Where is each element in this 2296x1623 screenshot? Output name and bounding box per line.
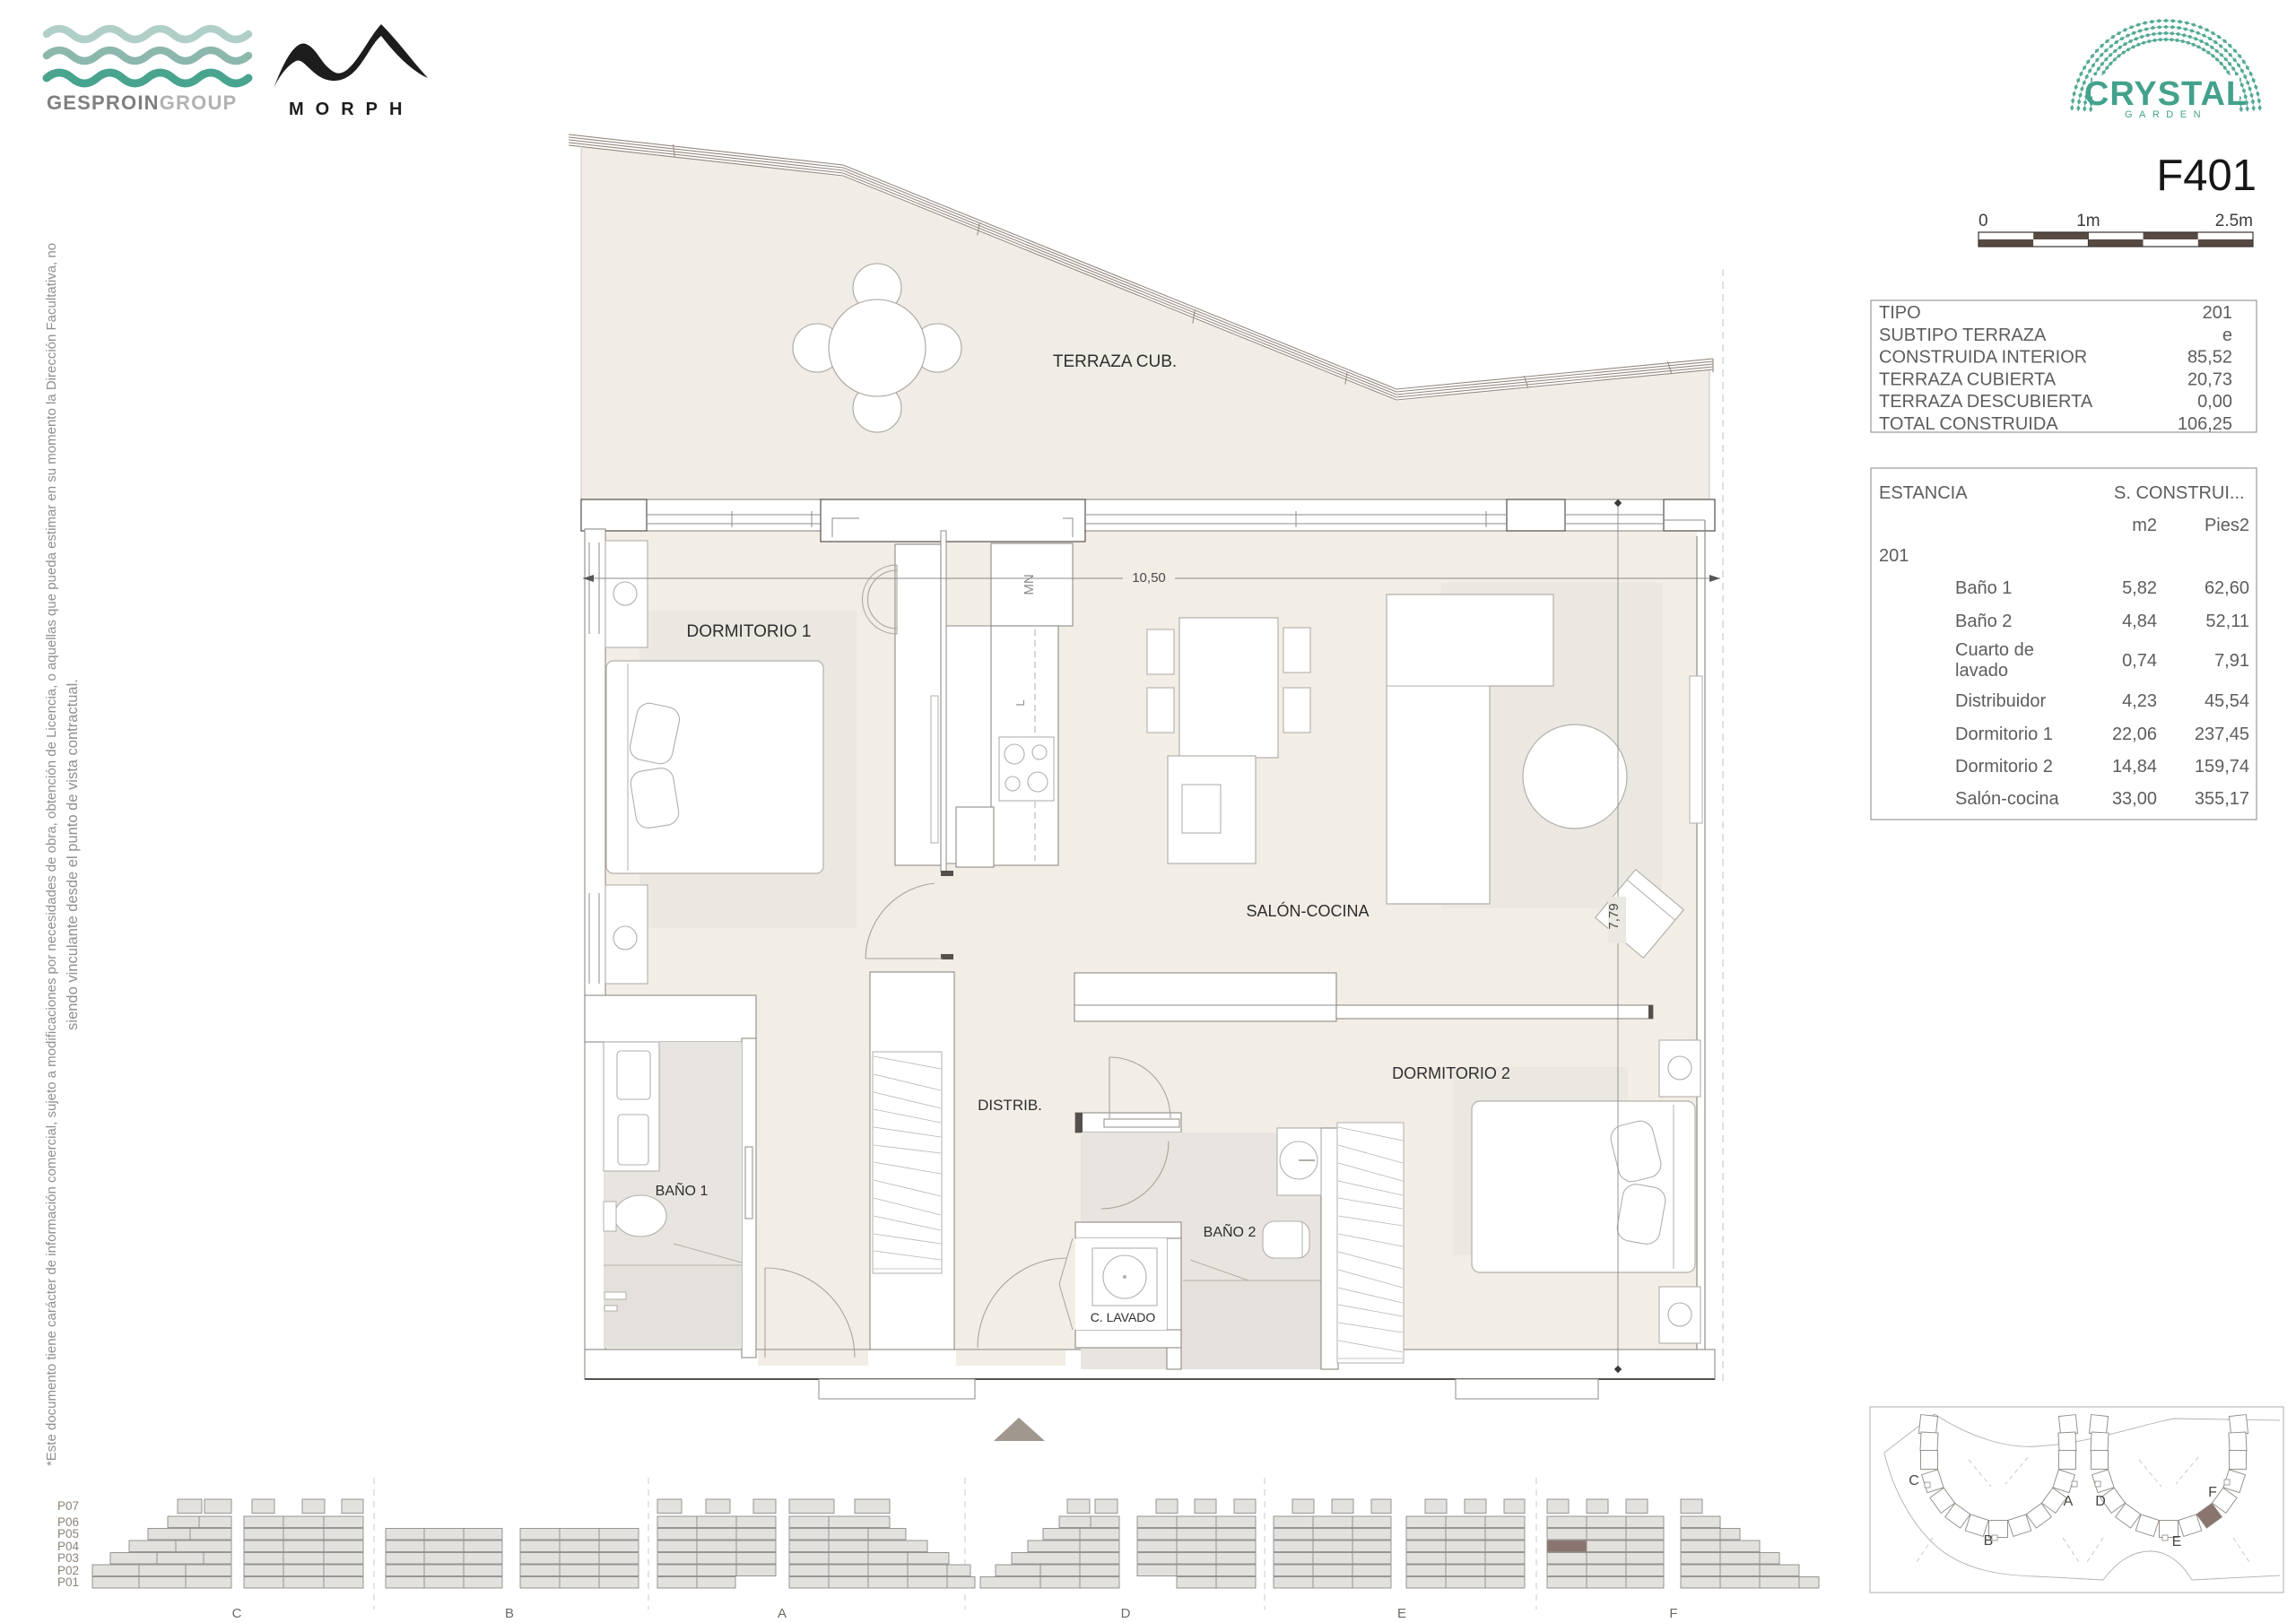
- svg-text:10,50: 10,50: [1132, 570, 1166, 586]
- svg-text:DISTRIB.: DISTRIB.: [978, 1097, 1042, 1114]
- svg-text:20,73: 20,73: [2187, 369, 2232, 389]
- svg-text:*Este documento tiene carácter: *Este documento tiene carácter de inform…: [44, 243, 59, 1466]
- svg-text:C. LAVADO: C. LAVADO: [1091, 1310, 1156, 1324]
- svg-text:GESPROINGROUP: GESPROINGROUP: [47, 91, 237, 114]
- svg-text:S. CONSTRUI...: S. CONSTRUI...: [2114, 483, 2245, 503]
- svg-text:MN: MN: [1022, 574, 1037, 595]
- svg-text:201: 201: [2203, 303, 2232, 323]
- svg-text:TERRAZA CUBIERTA: TERRAZA CUBIERTA: [1879, 369, 2057, 389]
- svg-text:CONSTRUIDA INTERIOR: CONSTRUIDA INTERIOR: [1879, 348, 2087, 368]
- svg-text:DORMITORIO 1: DORMITORIO 1: [687, 622, 812, 641]
- svg-text:F401: F401: [2156, 152, 2257, 200]
- svg-text:D: D: [1121, 1606, 1131, 1621]
- svg-text:B: B: [1984, 1533, 1994, 1549]
- svg-text:E: E: [2172, 1534, 2182, 1549]
- svg-text:P01: P01: [57, 1575, 79, 1589]
- svg-text:P07: P07: [57, 1499, 79, 1513]
- svg-text:TERRAZA DESCUBIERTA: TERRAZA DESCUBIERTA: [1879, 392, 2093, 412]
- svg-text:MORPH: MORPH: [289, 100, 413, 119]
- svg-text:Cuarto de: Cuarto de: [1955, 640, 2034, 660]
- svg-text:TIPO: TIPO: [1879, 303, 1921, 323]
- svg-text:m2: m2: [2132, 516, 2157, 535]
- svg-text:DORMITORIO 2: DORMITORIO 2: [1392, 1064, 1510, 1082]
- svg-text:BAÑO 1: BAÑO 1: [656, 1181, 709, 1199]
- svg-text:siendo vinculante desde el pun: siendo vinculante desde el punto de vist…: [65, 679, 81, 1030]
- svg-text:A: A: [2064, 1494, 2074, 1509]
- svg-text:TERRAZA CUB.: TERRAZA CUB.: [1053, 352, 1177, 371]
- svg-text:lavado: lavado: [1955, 661, 2008, 681]
- svg-text:Pies2: Pies2: [2205, 516, 2249, 535]
- svg-text:1m: 1m: [2076, 212, 2100, 230]
- svg-text:A: A: [778, 1606, 787, 1621]
- svg-text:14,84: 14,84: [2112, 757, 2157, 777]
- svg-text:ESTANCIA: ESTANCIA: [1879, 483, 1968, 503]
- svg-text:52,11: 52,11: [2205, 612, 2249, 631]
- svg-text:Salón-cocina: Salón-cocina: [1955, 789, 2060, 809]
- svg-text:P03: P03: [57, 1551, 79, 1565]
- svg-text:Baño 2: Baño 2: [1955, 612, 2012, 631]
- svg-text:C: C: [232, 1606, 242, 1621]
- svg-text:2.5m: 2.5m: [2215, 212, 2253, 230]
- svg-text:7,91: 7,91: [2214, 651, 2249, 671]
- svg-text:SALÓN-COCINA: SALÓN-COCINA: [1246, 901, 1369, 920]
- svg-text:Distribuidor: Distribuidor: [1955, 691, 2046, 711]
- svg-text:GARDEN: GARDEN: [2125, 109, 2207, 120]
- svg-text:SUBTIPO TERRAZA: SUBTIPO TERRAZA: [1879, 325, 2047, 345]
- svg-text:237,45: 237,45: [2195, 725, 2249, 744]
- svg-text:BAÑO 2: BAÑO 2: [1204, 1222, 1257, 1240]
- svg-text:85,52: 85,52: [2187, 348, 2232, 368]
- svg-text:Baño 1: Baño 1: [1955, 578, 2012, 598]
- svg-text:159,74: 159,74: [2195, 757, 2249, 777]
- svg-text:0,00: 0,00: [2197, 392, 2232, 412]
- svg-text:F: F: [2208, 1485, 2217, 1500]
- svg-text:0,74: 0,74: [2122, 651, 2157, 671]
- svg-text:TOTAL CONSTRUIDA: TOTAL CONSTRUIDA: [1879, 414, 2058, 434]
- svg-text:0: 0: [1979, 212, 1988, 230]
- svg-text:355,17: 355,17: [2195, 789, 2249, 809]
- svg-text:4,84: 4,84: [2122, 612, 2157, 631]
- svg-text:62,60: 62,60: [2205, 578, 2249, 598]
- svg-text:201: 201: [1879, 546, 1909, 566]
- svg-text:106,25: 106,25: [2178, 414, 2232, 434]
- svg-text:33,00: 33,00: [2112, 789, 2157, 809]
- svg-text:Dormitorio 2: Dormitorio 2: [1955, 757, 2053, 777]
- svg-text:4,23: 4,23: [2122, 691, 2157, 711]
- svg-text:e: e: [2222, 325, 2232, 345]
- svg-text:22,06: 22,06: [2112, 725, 2157, 744]
- svg-text:F: F: [1669, 1606, 1677, 1621]
- svg-text:P05: P05: [57, 1527, 79, 1541]
- svg-text:Dormitorio 1: Dormitorio 1: [1955, 725, 2053, 744]
- svg-text:C: C: [1909, 1473, 1919, 1488]
- svg-text:B: B: [505, 1606, 514, 1621]
- svg-text:45,54: 45,54: [2205, 691, 2249, 711]
- svg-text:5,82: 5,82: [2122, 578, 2157, 598]
- svg-text:L: L: [1013, 699, 1027, 706]
- svg-text:E: E: [1397, 1606, 1406, 1621]
- svg-text:CRYSTAL: CRYSTAL: [2084, 75, 2248, 113]
- svg-text:7,79: 7,79: [1606, 903, 1622, 929]
- svg-text:D: D: [2095, 1494, 2106, 1509]
